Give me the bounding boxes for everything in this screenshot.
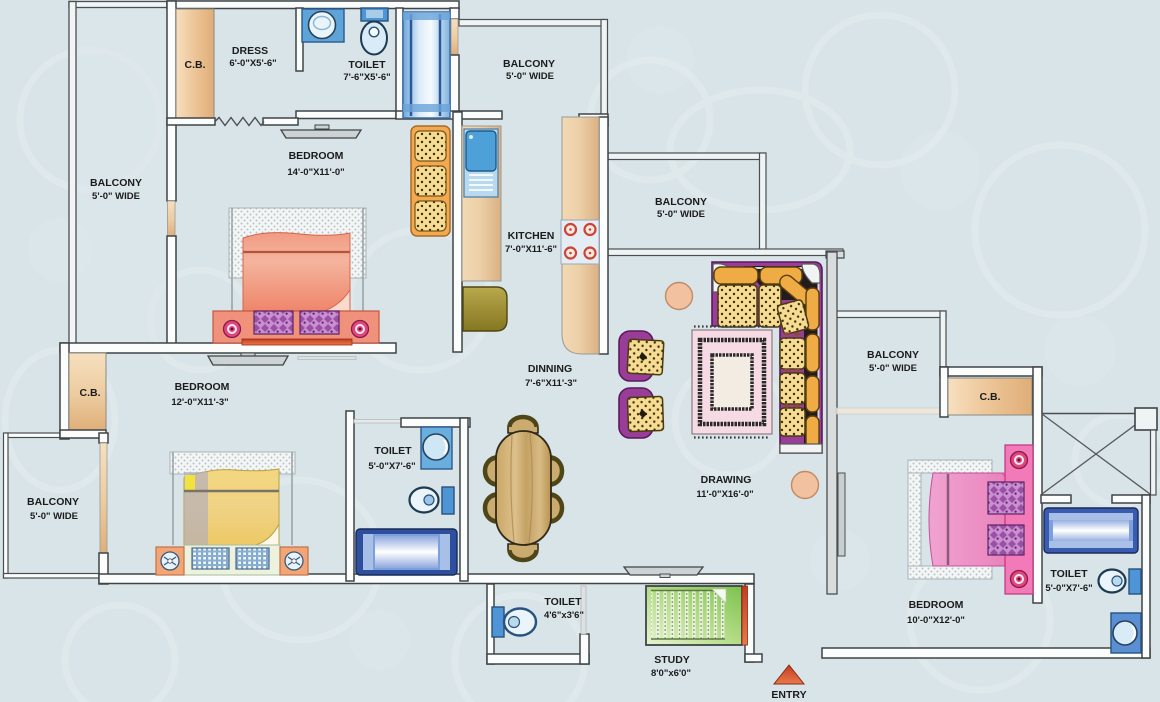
- svg-text:12'-0"X11'-3": 12'-0"X11'-3": [171, 397, 228, 408]
- svg-text:5'-0" WIDE: 5'-0" WIDE: [92, 191, 140, 202]
- svg-text:TOILET: TOILET: [1050, 568, 1088, 580]
- svg-text:STUDY: STUDY: [654, 654, 690, 666]
- svg-text:BALCONY: BALCONY: [655, 196, 707, 208]
- svg-text:14'-0"X11'-0": 14'-0"X11'-0": [287, 167, 344, 178]
- svg-text:5'-0"X7'-6": 5'-0"X7'-6": [368, 461, 415, 472]
- svg-text:DRAWING: DRAWING: [701, 474, 752, 486]
- svg-text:BALCONY: BALCONY: [27, 496, 79, 508]
- svg-text:DRESS: DRESS: [232, 45, 268, 57]
- svg-text:5'-0" WIDE: 5'-0" WIDE: [506, 71, 554, 82]
- svg-text:5'-0" WIDE: 5'-0" WIDE: [869, 363, 917, 374]
- svg-text:BEDROOM: BEDROOM: [909, 599, 964, 611]
- svg-text:ENTRY: ENTRY: [771, 689, 806, 701]
- svg-text:6'-0"X5'-6": 6'-0"X5'-6": [229, 58, 276, 69]
- svg-text:BALCONY: BALCONY: [867, 349, 919, 361]
- svg-text:TOILET: TOILET: [348, 59, 386, 71]
- svg-text:C.B.: C.B.: [980, 391, 1001, 403]
- svg-text:11'-0"X16'-0": 11'-0"X16'-0": [696, 489, 753, 500]
- svg-text:BEDROOM: BEDROOM: [289, 150, 344, 162]
- svg-text:5'-0" WIDE: 5'-0" WIDE: [30, 511, 78, 522]
- svg-text:BEDROOM: BEDROOM: [175, 381, 230, 393]
- svg-text:7'-6"X5'-6": 7'-6"X5'-6": [343, 72, 390, 83]
- svg-text:4'6"x3'6": 4'6"x3'6": [544, 610, 584, 621]
- svg-text:10'-0"X12'-0": 10'-0"X12'-0": [907, 615, 965, 626]
- svg-text:8'0"x6'0": 8'0"x6'0": [651, 668, 691, 679]
- svg-text:C.B.: C.B.: [185, 59, 206, 71]
- svg-text:7'-6"X11'-3": 7'-6"X11'-3": [525, 378, 577, 389]
- svg-text:5'-0"X7'-6": 5'-0"X7'-6": [1045, 583, 1092, 594]
- svg-text:BALCONY: BALCONY: [503, 58, 555, 70]
- svg-text:KITCHEN: KITCHEN: [508, 230, 555, 242]
- svg-text:TOILET: TOILET: [374, 445, 412, 457]
- svg-text:BALCONY: BALCONY: [90, 177, 142, 189]
- svg-text:5'-0" WIDE: 5'-0" WIDE: [657, 209, 705, 220]
- svg-text:TOILET: TOILET: [544, 596, 582, 608]
- svg-text:DINNING: DINNING: [528, 363, 572, 375]
- svg-text:C.B.: C.B.: [80, 387, 101, 399]
- svg-text:7'-0"X11'-6": 7'-0"X11'-6": [505, 244, 557, 255]
